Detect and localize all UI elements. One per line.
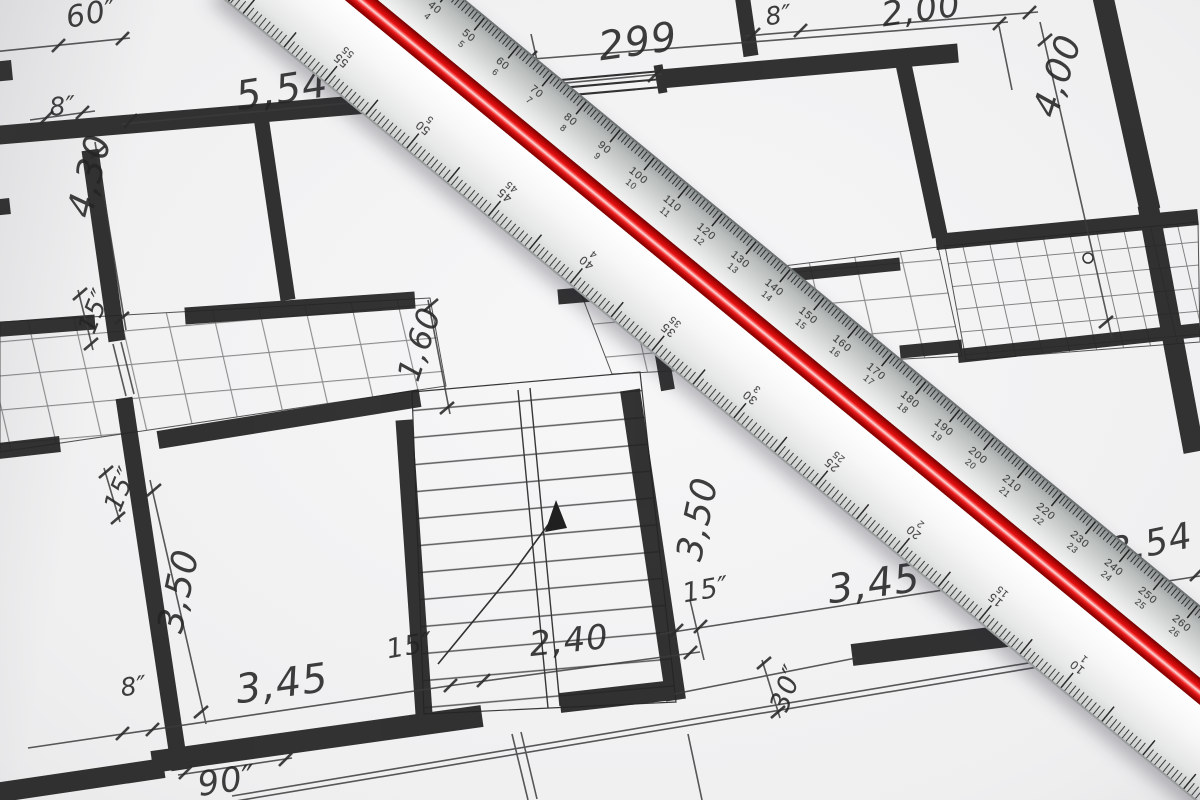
dimension-label: 15″ <box>73 284 118 338</box>
dimension-label: 3,50 <box>150 546 208 637</box>
dimension-label: 4,30 <box>60 130 120 222</box>
dimension-label: 2,40 <box>527 617 610 665</box>
dimension-label: 4,00 <box>1026 30 1091 123</box>
dimension-label: 2,00 <box>879 0 963 35</box>
dimension-label: 1,60 <box>389 302 448 385</box>
dimension-label: 60″ <box>63 0 121 36</box>
dimension-label: 15″ <box>99 462 144 516</box>
dimension-label: 8″ <box>48 90 78 122</box>
dimension-label: 3,50 <box>669 474 727 565</box>
dimension-label: 30″ <box>764 660 809 715</box>
dimension-label: 15″ <box>680 571 732 610</box>
dimension-label: 3,45 <box>233 655 332 714</box>
blueprint-photo: 60″8″5,544,302998″2,004,0015″1,6015″3,50… <box>0 0 1200 800</box>
dimension-label: 90″ <box>195 757 259 800</box>
dimension-label: 8″ <box>118 670 149 703</box>
dimension-label: 299 <box>596 14 681 71</box>
dimension-label: 15″ <box>384 627 436 666</box>
dimension-label: 8″ <box>763 0 794 31</box>
